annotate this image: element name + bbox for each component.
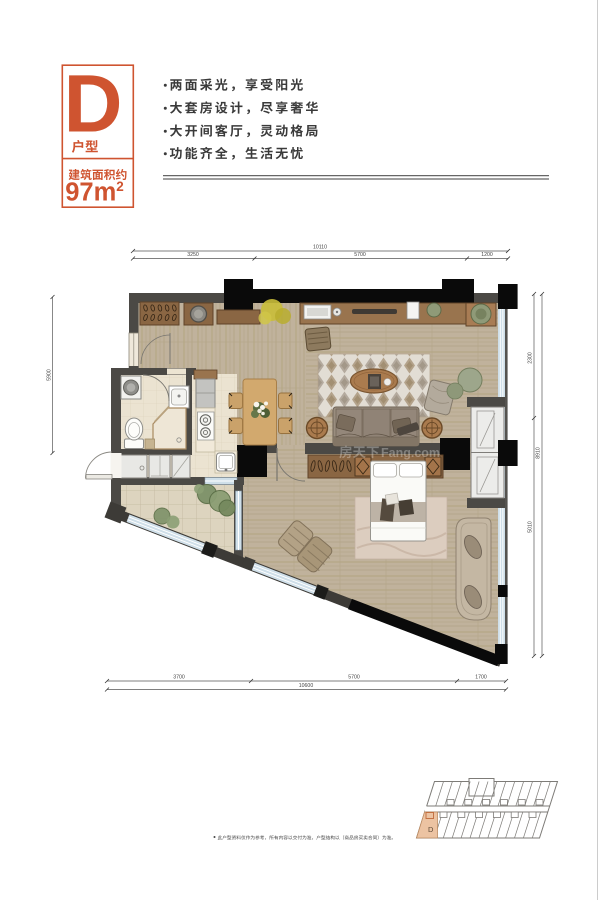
svg-text:5700: 5700 <box>354 252 366 258</box>
svg-text:3250: 3250 <box>187 252 199 258</box>
svg-text:5010: 5010 <box>528 521 534 533</box>
svg-text:5900: 5900 <box>47 369 53 381</box>
svg-text:97m2: 97m2 <box>65 179 124 207</box>
svg-text:D: D <box>428 825 434 834</box>
svg-text:D: D <box>64 59 123 150</box>
svg-text:10110: 10110 <box>313 245 327 251</box>
svg-text:8910: 8910 <box>536 447 542 459</box>
svg-text:5700: 5700 <box>348 675 360 681</box>
svg-text:Fang.com: Fang.com <box>381 446 440 460</box>
svg-text:1700: 1700 <box>475 675 487 681</box>
svg-text:2300: 2300 <box>528 352 534 364</box>
svg-text:1200: 1200 <box>481 252 493 258</box>
svg-text:3700: 3700 <box>173 675 185 681</box>
svg-text:10600: 10600 <box>299 683 314 689</box>
